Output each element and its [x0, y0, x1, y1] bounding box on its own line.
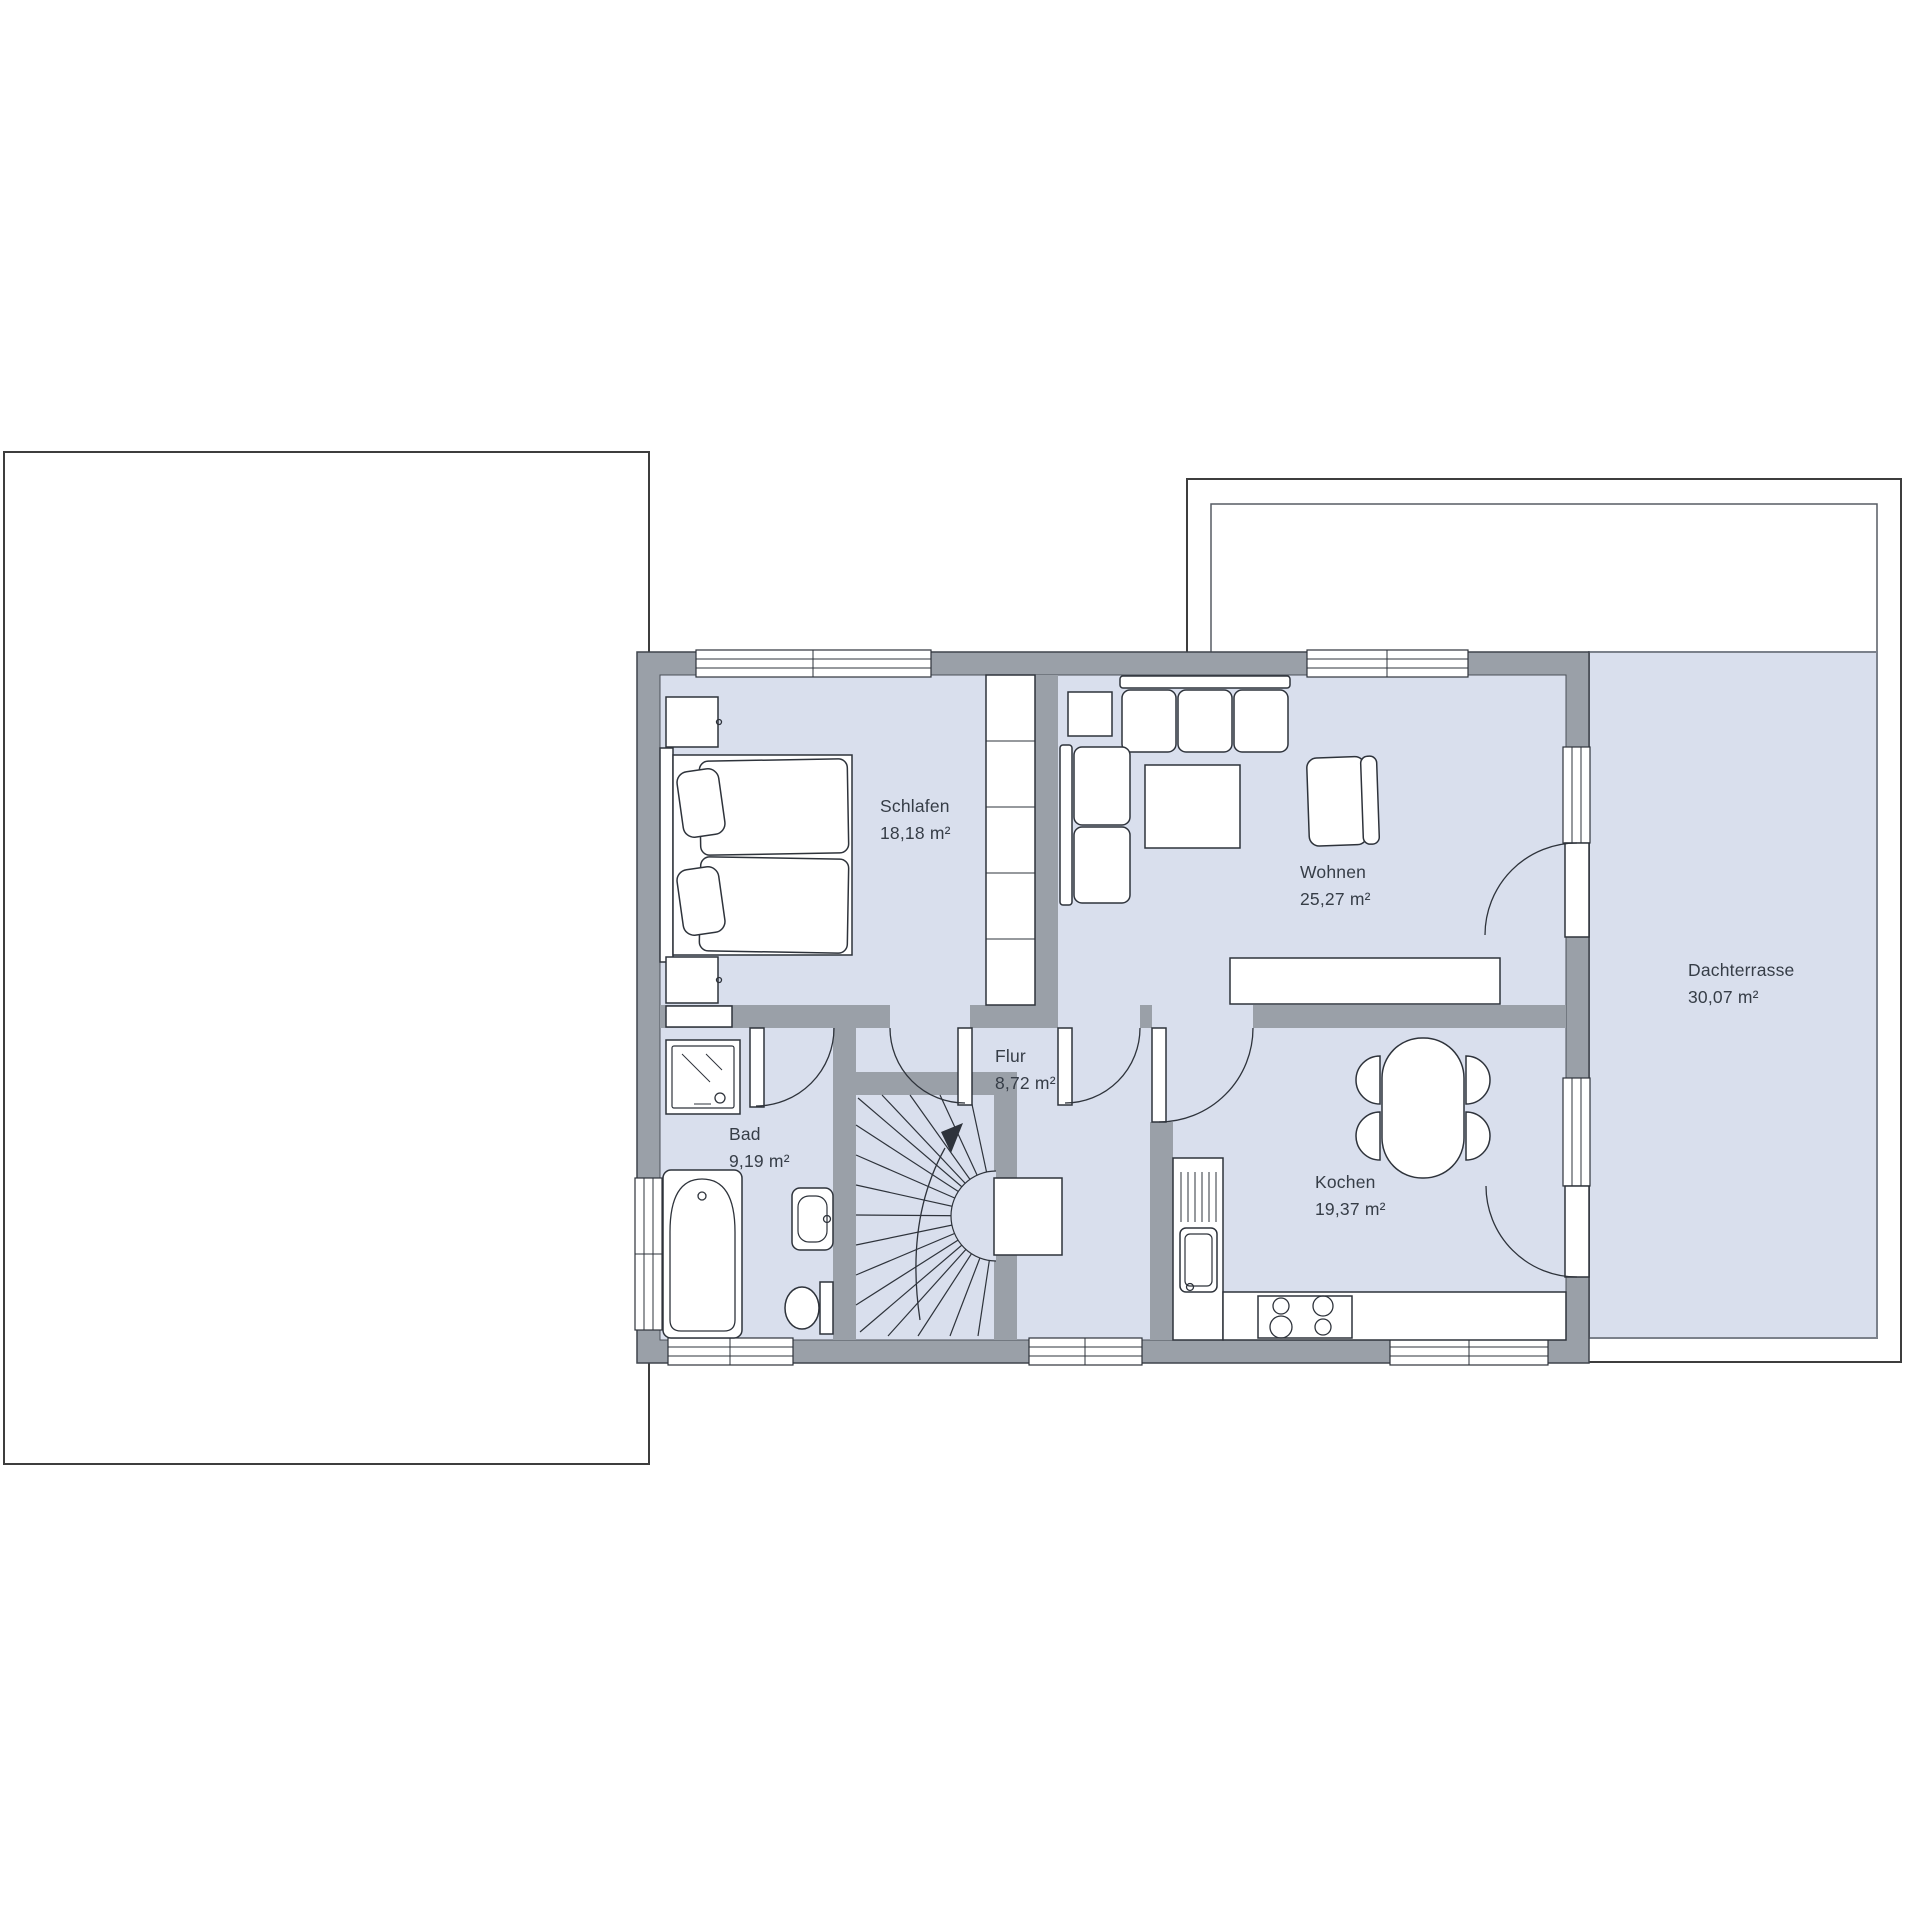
- coffee-table: [1145, 765, 1240, 848]
- label-bad-area: 9,19 m²: [729, 1151, 790, 1171]
- label-kochen-area: 19,37 m²: [1315, 1199, 1386, 1219]
- floor-plan: Schlafen 18,18 m² Wohnen 25,27 m² Flur 8…: [0, 0, 1920, 1920]
- window-schlafen-north: [696, 650, 931, 677]
- label-dachterrasse-area: 30,07 m²: [1688, 987, 1759, 1007]
- wardrobe: [986, 675, 1035, 1005]
- window-flur-south: [1029, 1338, 1142, 1365]
- window-kochen-south: [1390, 1338, 1548, 1365]
- window-bad-west: [635, 1178, 662, 1330]
- roof-outline-left: [4, 452, 649, 1464]
- bed: [660, 748, 852, 962]
- shower: [666, 1040, 740, 1114]
- bathtub: [663, 1170, 742, 1338]
- label-dachterrasse-name: Dachterrasse: [1688, 960, 1794, 980]
- stove: [1258, 1296, 1352, 1338]
- sofa-two-seat: [1060, 745, 1130, 905]
- label-bad-name: Bad: [729, 1124, 761, 1144]
- label-wohnen-area: 25,27 m²: [1300, 889, 1371, 909]
- window-bad-south: [668, 1338, 793, 1365]
- window-wohnen-north: [1307, 650, 1468, 677]
- window-wohnen-east: [1563, 747, 1590, 843]
- label-flur-area: 8,72 m²: [995, 1073, 1056, 1093]
- label-schlafen-area: 18,18 m²: [880, 823, 951, 843]
- nightstand-top: [666, 697, 722, 747]
- wall-niche: [666, 1006, 732, 1027]
- floor-plan-page: Schlafen 18,18 m² Wohnen 25,27 m² Flur 8…: [0, 0, 1920, 1920]
- stair-landing: [994, 1178, 1062, 1255]
- sofa-three-seat: [1120, 676, 1290, 752]
- nightstand-bottom: [666, 957, 722, 1003]
- kitchen-sink: [1180, 1228, 1217, 1292]
- roof-outline-right-inner: [1211, 504, 1877, 654]
- label-flur-name: Flur: [995, 1046, 1026, 1066]
- window-kochen-east: [1563, 1078, 1590, 1186]
- armchair: [1306, 756, 1379, 846]
- label-wohnen-name: Wohnen: [1300, 862, 1366, 882]
- sideboard: [1230, 958, 1500, 1004]
- label-kochen-name: Kochen: [1315, 1172, 1376, 1192]
- side-table: [1068, 692, 1112, 736]
- label-schlafen-name: Schlafen: [880, 796, 950, 816]
- washbasin: [792, 1188, 833, 1250]
